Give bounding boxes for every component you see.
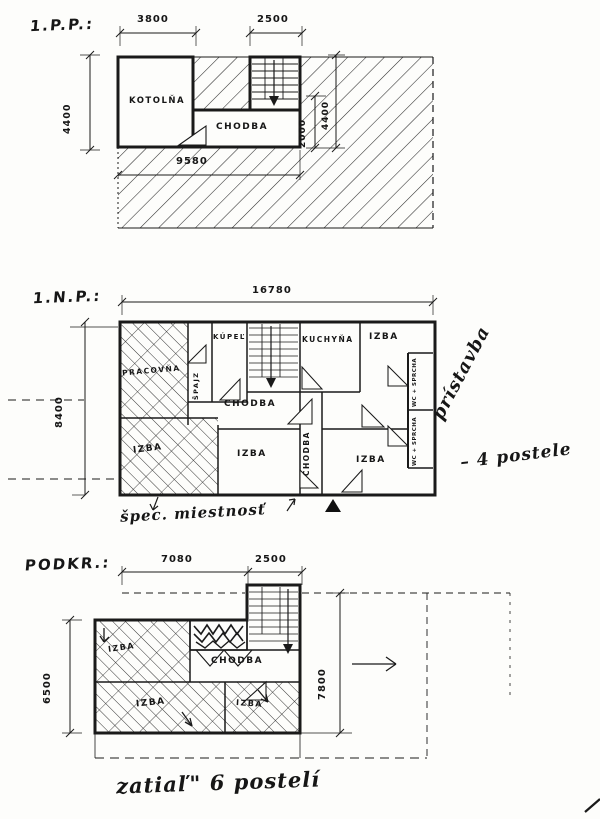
page-corner-mark (585, 799, 600, 812)
room-label-kuchyna: KUCHYŇA (302, 335, 354, 344)
dim-3800: 3800 (137, 14, 169, 25)
room-label-kotolna: KOTOLŇA (129, 96, 185, 106)
room-label-chodba-basement: CHODBA (216, 122, 268, 132)
extension-arrow-icon (352, 657, 396, 671)
room-label-chodba-attic: CHODBA (211, 656, 263, 666)
stairs-icon (249, 324, 298, 388)
room-label-chodba-ground: CHODBA (224, 399, 276, 409)
dim-2500: 2500 (257, 14, 289, 25)
room-label-wc-bottom: WC + SPRCHA (412, 414, 418, 466)
dim-6500: 6500 (42, 650, 53, 704)
dim-7800: 7800 (317, 646, 328, 700)
stairs-icon (249, 587, 298, 654)
dim-2500-attic: 2500 (255, 554, 287, 565)
dim-2000: 2000 (298, 102, 308, 148)
room-label-chodba-vertical: CHODBA (302, 420, 311, 476)
north-arrow-icon (325, 499, 341, 512)
room-label-spajz: ŠPAJZ (192, 342, 200, 400)
dim-16780: 16780 (252, 285, 292, 296)
room-label-izba-right: IZBA (356, 455, 386, 465)
room-label-izba-top: IZBA (369, 332, 399, 342)
dim-4400-left: 4400 (62, 78, 73, 134)
dim-8400: 8400 (54, 374, 65, 428)
room-label-wc-top: WC + SPRCHA (412, 357, 418, 407)
floor-plan-sketch: 1.P.P.: 3800 2500 4400 2000 4400 9580 KO… (0, 0, 600, 819)
attic-title: PODKR.: (24, 554, 111, 575)
room-label-izba-mid: IZBA (237, 449, 267, 459)
door-swings (188, 345, 408, 492)
dim-4400-inner: 4400 (321, 78, 331, 130)
room-label-kupel: KÚPEĽ (213, 333, 246, 341)
dim-9580: 9580 (176, 156, 208, 167)
basement-title: 1.P.P.: (29, 15, 95, 35)
ground-title: 1.N.P.: (32, 287, 102, 307)
attic-plan (62, 566, 510, 758)
dim-7080: 7080 (161, 554, 193, 565)
ground-plan (8, 295, 437, 512)
room-label-izba-br: IZBA (236, 698, 264, 709)
